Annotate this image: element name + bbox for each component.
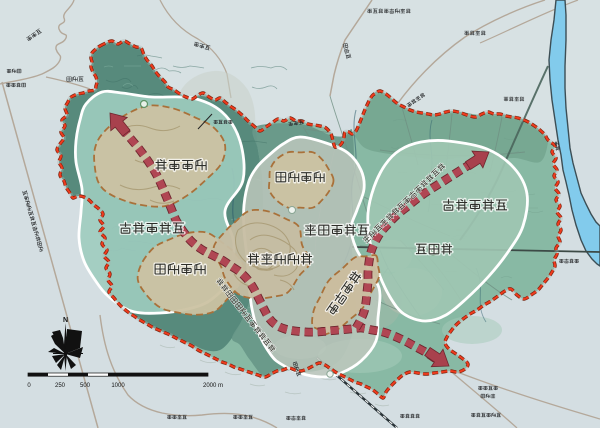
svg-text:2000 m: 2000 m xyxy=(203,383,223,389)
svg-text:N: N xyxy=(63,317,68,324)
svg-text:500: 500 xyxy=(80,383,91,389)
svg-text:250: 250 xyxy=(55,383,66,389)
svg-text:1000: 1000 xyxy=(111,383,125,389)
